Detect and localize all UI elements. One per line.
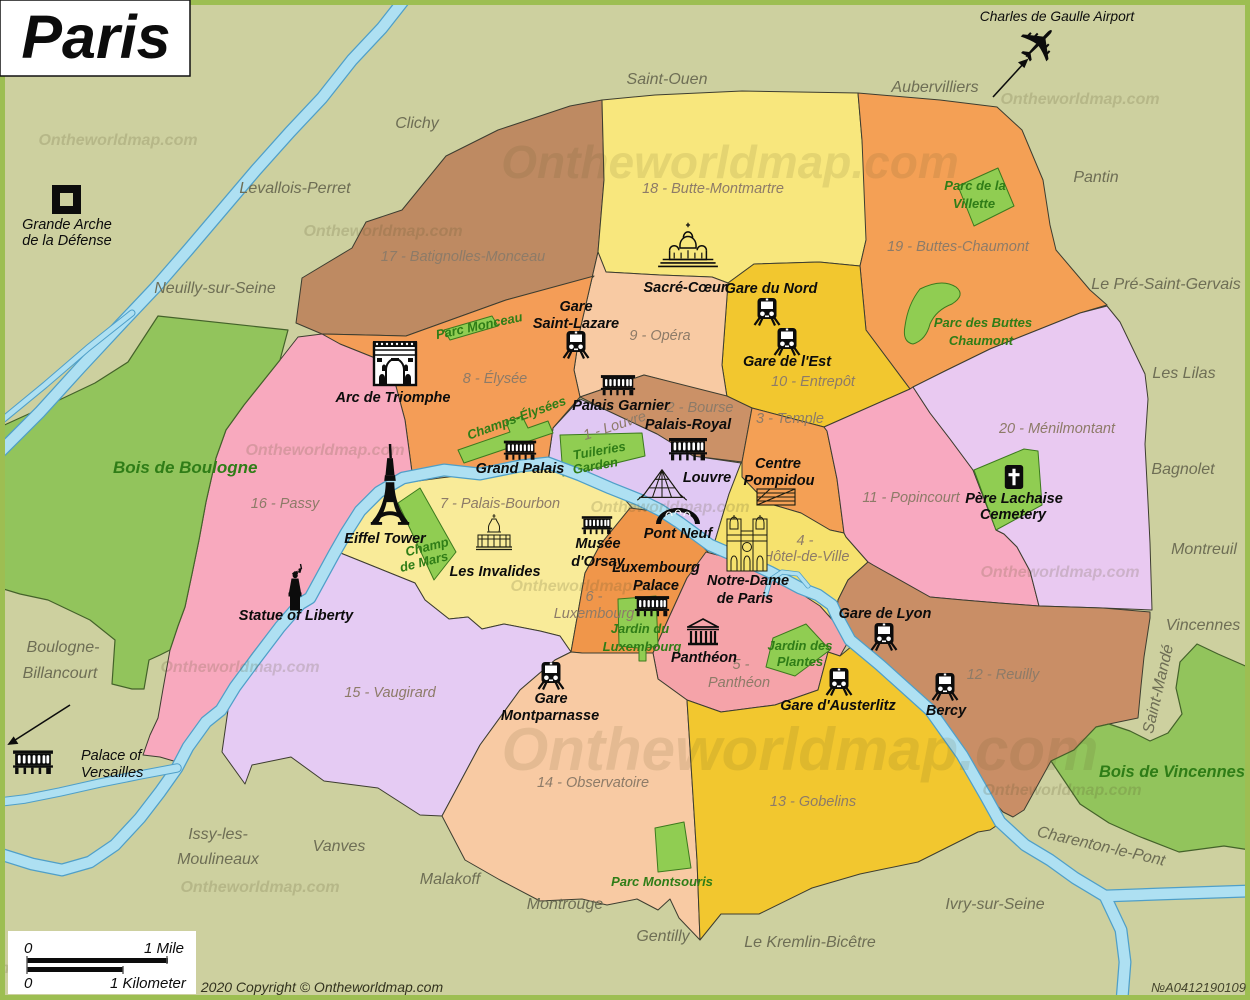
svg-text:Plantes: Plantes: [777, 654, 823, 669]
svg-text:Ivry-sur-Seine: Ivry-sur-Seine: [945, 896, 1044, 913]
svg-text:9 - Opéra: 9 - Opéra: [629, 328, 690, 344]
svg-text:Palais-Royal: Palais-Royal: [645, 417, 732, 433]
svg-text:Levallois-Perret: Levallois-Perret: [239, 180, 351, 197]
svg-text:3 - Temple: 3 - Temple: [756, 411, 824, 427]
svg-text:Jardin des: Jardin des: [767, 638, 832, 653]
svg-text:Bercy: Bercy: [926, 703, 967, 719]
svg-text:Les Lilas: Les Lilas: [1152, 365, 1215, 382]
svg-text:Vincennes: Vincennes: [1166, 617, 1240, 634]
svg-text:Gentilly: Gentilly: [636, 928, 690, 945]
svg-text:Panthéon: Panthéon: [708, 675, 770, 691]
svg-text:Versailles: Versailles: [81, 765, 143, 781]
svg-text:Ontheworldmap.com: Ontheworldmap.com: [980, 564, 1139, 581]
svg-text:Gare de l'Est: Gare de l'Est: [743, 354, 832, 370]
svg-text:Moulineaux: Moulineaux: [177, 851, 260, 868]
svg-text:Neuilly-sur-Seine: Neuilly-sur-Seine: [154, 280, 276, 297]
svg-text:Ontheworldmap.com: Ontheworldmap.com: [245, 442, 404, 459]
svg-text:8 - Élysée: 8 - Élysée: [463, 370, 527, 387]
svg-text:Boulogne-: Boulogne-: [27, 639, 100, 656]
svg-text:Louvre: Louvre: [683, 470, 731, 486]
svg-text:20 - Ménilmontant: 20 - Ménilmontant: [998, 421, 1116, 437]
svg-text:Gare: Gare: [534, 691, 567, 707]
svg-text:Notre-Dame: Notre-Dame: [707, 573, 789, 589]
svg-text:19 - Buttes-Chaumont: 19 - Buttes-Chaumont: [887, 239, 1030, 255]
svg-text:0: 0: [24, 975, 33, 992]
svg-text:Pont Neuf: Pont Neuf: [644, 526, 715, 542]
svg-text:Pantin: Pantin: [1073, 169, 1118, 186]
svg-text:14 - Observatoire: 14 - Observatoire: [537, 775, 649, 791]
svg-text:Palace of: Palace of: [81, 748, 143, 764]
svg-text:Parc Montsouris: Parc Montsouris: [611, 874, 713, 889]
svg-text:Ontheworldmap.com: Ontheworldmap.com: [180, 879, 339, 896]
svg-text:Parc des Buttes: Parc des Buttes: [934, 315, 1032, 330]
svg-text:Ontheworldmap.com: Ontheworldmap.com: [303, 223, 462, 240]
svg-text:Saint-Ouen: Saint-Ouen: [627, 71, 708, 88]
svg-text:de Paris: de Paris: [717, 591, 773, 607]
svg-text:1 Mile: 1 Mile: [144, 940, 184, 957]
svg-text:Ontheworldmap.com: Ontheworldmap.com: [590, 499, 749, 516]
svg-text:Bagnolet: Bagnolet: [1151, 461, 1215, 478]
svg-text:Père Lachaise: Père Lachaise: [965, 491, 1063, 507]
svg-text:Arc de Triomphe: Arc de Triomphe: [335, 390, 451, 406]
svg-text:Palace: Palace: [633, 578, 679, 594]
svg-text:Billancourt: Billancourt: [23, 665, 98, 682]
svg-text:Gare d'Austerlitz: Gare d'Austerlitz: [780, 698, 896, 714]
svg-text:Ontheworldmap.com: Ontheworldmap.com: [982, 782, 1141, 799]
svg-text:Luxembourg: Luxembourg: [603, 639, 682, 654]
svg-text:Centre: Centre: [755, 456, 801, 472]
svg-text:2020 Copyright © Ontheworldmap: 2020 Copyright © Ontheworldmap.com: [200, 979, 444, 995]
svg-text:Ontheworldmap.com: Ontheworldmap.com: [38, 132, 197, 149]
svg-text:Bois de Boulogne: Bois de Boulogne: [113, 458, 258, 477]
svg-text:Cemetery: Cemetery: [980, 507, 1047, 523]
svg-text:4 -: 4 -: [797, 533, 814, 549]
svg-text:16 - Passy: 16 - Passy: [251, 496, 320, 512]
svg-text:Parc de la: Parc de la: [944, 178, 1005, 193]
svg-text:Le Kremlin-Bicêtre: Le Kremlin-Bicêtre: [744, 934, 876, 951]
svg-text:de la Défense: de la Défense: [22, 233, 111, 249]
svg-text:Montparnasse: Montparnasse: [501, 708, 599, 724]
svg-text:Luxembourg: Luxembourg: [612, 560, 700, 576]
svg-text:Hôtel-de-Ville: Hôtel-de-Ville: [763, 549, 850, 565]
svg-text:18 - Butte-Montmartre: 18 - Butte-Montmartre: [642, 181, 784, 197]
svg-text:Palais Garnier: Palais Garnier: [572, 398, 671, 414]
svg-text:Luxembourg: Luxembourg: [554, 606, 635, 622]
svg-text:Saint-Lazare: Saint-Lazare: [533, 316, 619, 332]
svg-text:Chaumont: Chaumont: [949, 333, 1014, 348]
svg-text:Malakoff: Malakoff: [420, 871, 482, 888]
svg-text:6 -: 6 -: [586, 589, 603, 605]
svg-text:Gare du Nord: Gare du Nord: [725, 281, 819, 297]
svg-text:2 - Bourse: 2 - Bourse: [666, 400, 734, 416]
svg-text:Villette: Villette: [953, 196, 995, 211]
svg-text:Panthéon: Panthéon: [671, 650, 737, 666]
svg-text:1 Kilometer: 1 Kilometer: [110, 975, 187, 992]
svg-text:Grand Palais: Grand Palais: [476, 461, 565, 477]
svg-text:11 - Popincourt: 11 - Popincourt: [862, 490, 960, 506]
svg-text:Sacré-Cœur: Sacré-Cœur: [644, 280, 728, 296]
svg-text:Vanves: Vanves: [313, 838, 366, 855]
svg-text:Charles de Gaulle Airport: Charles de Gaulle Airport: [980, 9, 1136, 24]
svg-text:Montreuil: Montreuil: [1171, 541, 1237, 558]
svg-text:Grande Arche: Grande Arche: [22, 217, 112, 233]
svg-text:Eiffel Tower: Eiffel Tower: [344, 531, 427, 547]
svg-text:Ontheworldmap.com: Ontheworldmap.com: [160, 659, 319, 676]
svg-text:7 - Palais-Bourbon: 7 - Palais-Bourbon: [440, 496, 560, 512]
svg-text:15 - Vaugirard: 15 - Vaugirard: [344, 685, 436, 701]
svg-text:№A0412190109: №A0412190109: [1151, 980, 1246, 995]
svg-text:0: 0: [24, 940, 33, 957]
svg-text:Aubervilliers: Aubervilliers: [890, 79, 978, 96]
svg-text:Musée: Musée: [575, 536, 620, 552]
svg-text:Ontheworldmap.com: Ontheworldmap.com: [1000, 91, 1159, 108]
svg-text:Bois de Vincennes: Bois de Vincennes: [1099, 763, 1245, 781]
svg-text:Jardin du: Jardin du: [611, 621, 670, 636]
svg-text:Ontheworldmap.com: Ontheworldmap.com: [502, 716, 1099, 783]
svg-text:Paris: Paris: [21, 3, 170, 71]
svg-text:13 - Gobelins: 13 - Gobelins: [770, 794, 856, 810]
svg-text:10 - Entrepôt: 10 - Entrepôt: [771, 374, 856, 390]
svg-text:Issy-les-: Issy-les-: [188, 826, 248, 843]
svg-text:Les Invalides: Les Invalides: [449, 564, 540, 580]
svg-text:Le Pré-Saint-Gervais: Le Pré-Saint-Gervais: [1091, 276, 1240, 293]
svg-text:Gare: Gare: [559, 299, 592, 315]
svg-text:Pompidou: Pompidou: [744, 473, 815, 489]
svg-text:12 - Reuilly: 12 - Reuilly: [967, 667, 1040, 683]
svg-text:Gare de Lyon: Gare de Lyon: [839, 606, 932, 622]
svg-text:17 - Batignolles-Monceau: 17 - Batignolles-Monceau: [381, 249, 545, 265]
svg-text:Clichy: Clichy: [395, 115, 440, 132]
svg-text:Montrouge: Montrouge: [527, 896, 604, 913]
